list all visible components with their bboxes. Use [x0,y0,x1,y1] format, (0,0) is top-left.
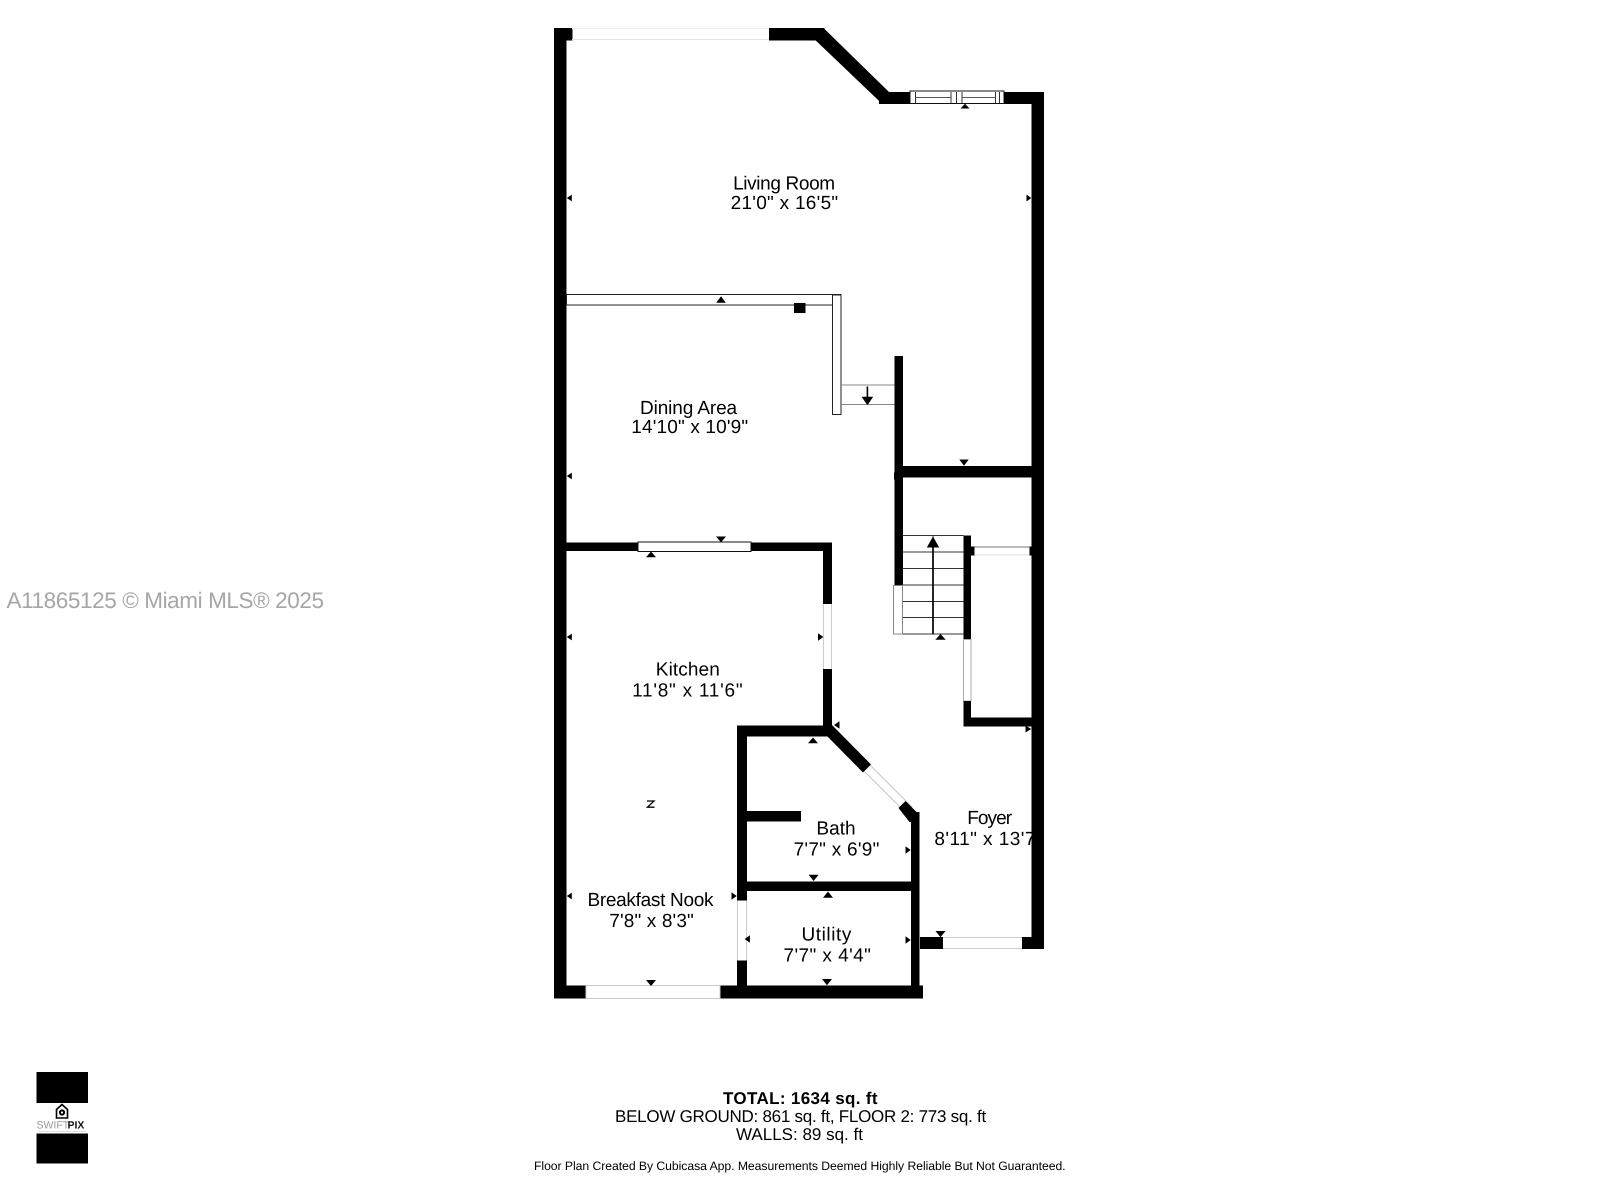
svg-text:Living Room: Living Room [733,173,835,194]
svg-text:Dining Area: Dining Area [640,398,738,419]
svg-text:7'7" x 4'4": 7'7" x 4'4" [784,946,872,967]
svg-text:14'10" x 10'9": 14'10" x 10'9" [631,417,748,438]
svg-text:Floor Plan Created By Cubicasa: Floor Plan Created By Cubicasa App. Meas… [534,1159,1066,1173]
svg-text:7'8" x 8'3": 7'8" x 8'3" [609,911,694,932]
svg-text:8'11" x 13'7": 8'11" x 13'7" [934,829,1043,850]
svg-text:TOTAL: 1634 sq. ft: TOTAL: 1634 sq. ft [723,1089,878,1108]
svg-text:Bath: Bath [816,819,855,840]
svg-text:SWIFT: SWIFT [37,1120,70,1132]
svg-text:Foyer: Foyer [967,808,1013,829]
svg-text:Breakfast Nook: Breakfast Nook [588,890,714,911]
svg-text:A11865125 © Miami MLS® 2025: A11865125 © Miami MLS® 2025 [7,588,324,613]
svg-text:BELOW GROUND: 861 sq. ft, FLOO: BELOW GROUND: 861 sq. ft, FLOOR 2: 773 s… [615,1107,986,1126]
svg-text:Utility: Utility [802,924,852,945]
svg-text:Kitchen: Kitchen [656,660,720,681]
svg-text:WALLS: 89 sq. ft: WALLS: 89 sq. ft [736,1125,863,1144]
svg-text:21'0" x 16'5": 21'0" x 16'5" [731,193,839,214]
svg-text:PIX: PIX [68,1120,85,1132]
svg-text:7'7" x 6'9": 7'7" x 6'9" [794,840,880,861]
svg-text:11'8" x 11'6": 11'8" x 11'6" [632,680,743,701]
